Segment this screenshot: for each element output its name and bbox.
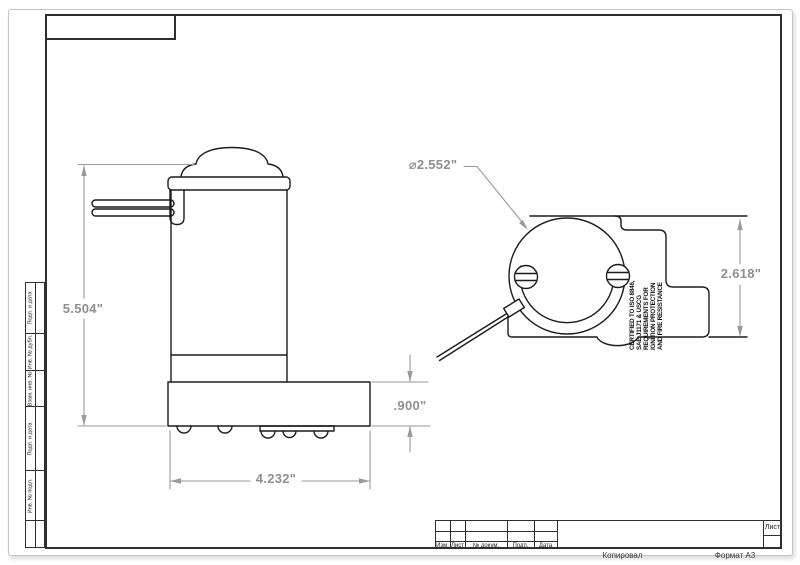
motor-dome xyxy=(181,148,283,178)
dim-label-end-height: 2.618" xyxy=(714,266,768,281)
motor-flange xyxy=(168,177,290,190)
title-block-line xyxy=(557,520,558,549)
leader-line-diameter xyxy=(464,167,526,228)
dim-label-diameter: ⌀2.552" xyxy=(400,157,466,173)
title-block-line xyxy=(435,520,782,521)
pump-base xyxy=(168,382,370,426)
dim-label-overall-height: 5.504" xyxy=(56,301,110,316)
title-block-line xyxy=(763,535,782,536)
plate-bump xyxy=(283,431,296,438)
title-block-col-list: Лист xyxy=(450,541,465,550)
certification-text: CERTIFIED TO ISO 8846, SAE J1171 & USCG … xyxy=(630,238,664,350)
arrowhead xyxy=(170,478,181,483)
title-block-col-izm: Изм. xyxy=(435,541,450,550)
arrowhead xyxy=(407,371,412,382)
pump-side-view xyxy=(92,148,370,439)
plate-bump xyxy=(261,431,275,438)
base-plate xyxy=(260,426,334,431)
wire-line xyxy=(437,314,508,361)
title-block-col-docnum: № докум. xyxy=(465,541,507,550)
base-foot xyxy=(177,426,191,433)
copied-by-label: Копировал xyxy=(580,551,665,560)
title-block-col-podp: Подп. xyxy=(507,541,534,550)
wire-lead xyxy=(92,209,174,216)
screw-head xyxy=(607,265,630,288)
wire-lug xyxy=(504,299,525,317)
arrowhead xyxy=(737,219,742,230)
drawing-sheet: Подп. и дата Инв. № дубл. Взам. инв. № П… xyxy=(0,0,800,565)
screw-head xyxy=(515,266,538,289)
arrowhead xyxy=(81,415,86,426)
motor-body xyxy=(171,190,287,382)
arrowhead xyxy=(359,478,370,483)
drawing-linework xyxy=(0,0,800,565)
arrowhead xyxy=(407,426,412,437)
arrowhead xyxy=(737,326,742,337)
base-foot xyxy=(218,426,232,433)
certification-line: AND FIRE RESISTANCE xyxy=(658,238,665,350)
dim-label-base-width: 4.232" xyxy=(249,471,303,486)
sheet-number-label: Лист xyxy=(763,521,782,534)
pump-end-view xyxy=(437,216,747,361)
wire-lead xyxy=(92,200,174,207)
dim-label-base-height: .900" xyxy=(386,398,434,413)
format-label: Формат А3 xyxy=(695,551,775,560)
title-block-line xyxy=(435,531,557,532)
title-block-col-data: Дата xyxy=(534,541,557,550)
arrowhead xyxy=(81,165,86,176)
arrowhead xyxy=(519,220,528,230)
plate-bump xyxy=(314,431,328,438)
